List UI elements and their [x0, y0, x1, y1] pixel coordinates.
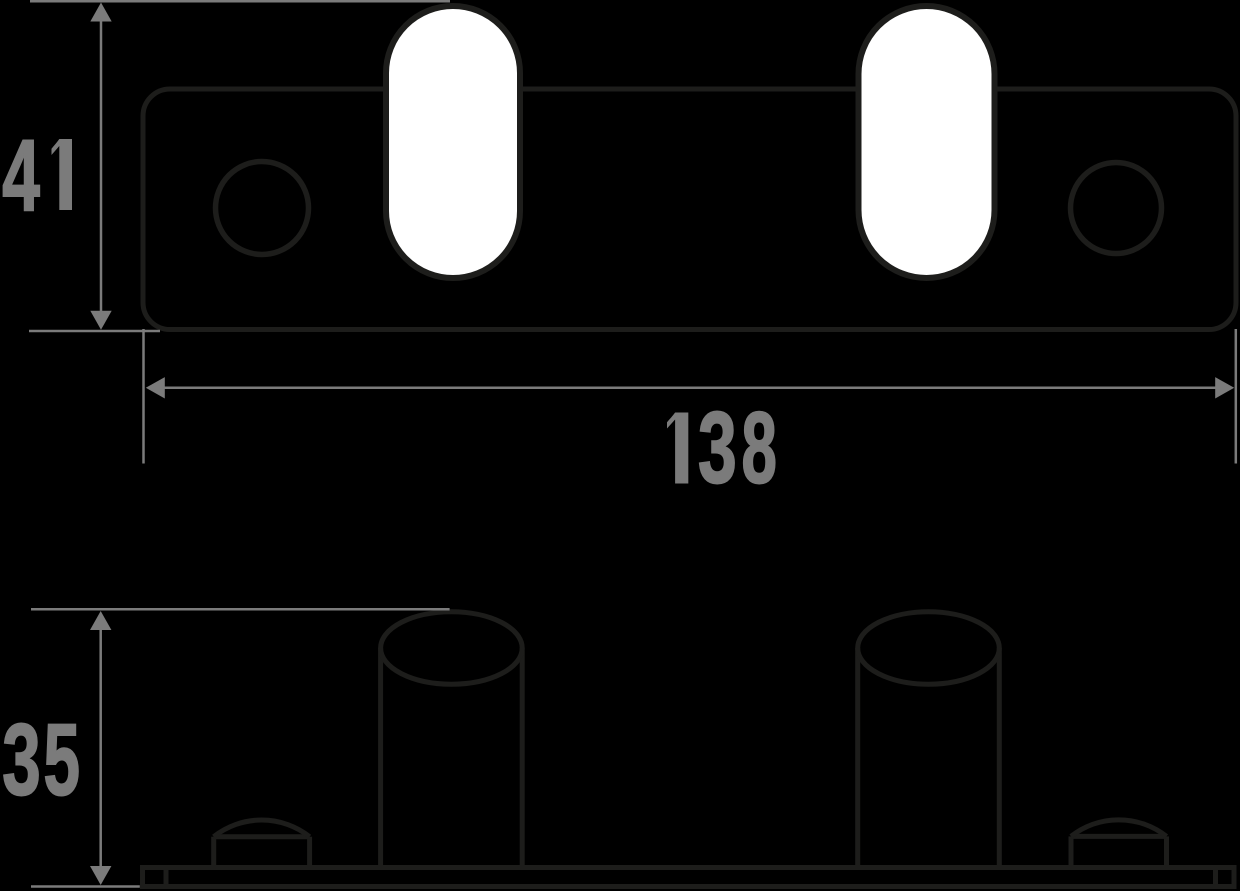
svg-text:4: 4	[2, 120, 40, 233]
svg-text:8: 8	[742, 392, 777, 504]
svg-text:3: 3	[698, 392, 737, 505]
svg-text:5: 5	[44, 704, 81, 817]
svg-text:3: 3	[2, 705, 40, 817]
